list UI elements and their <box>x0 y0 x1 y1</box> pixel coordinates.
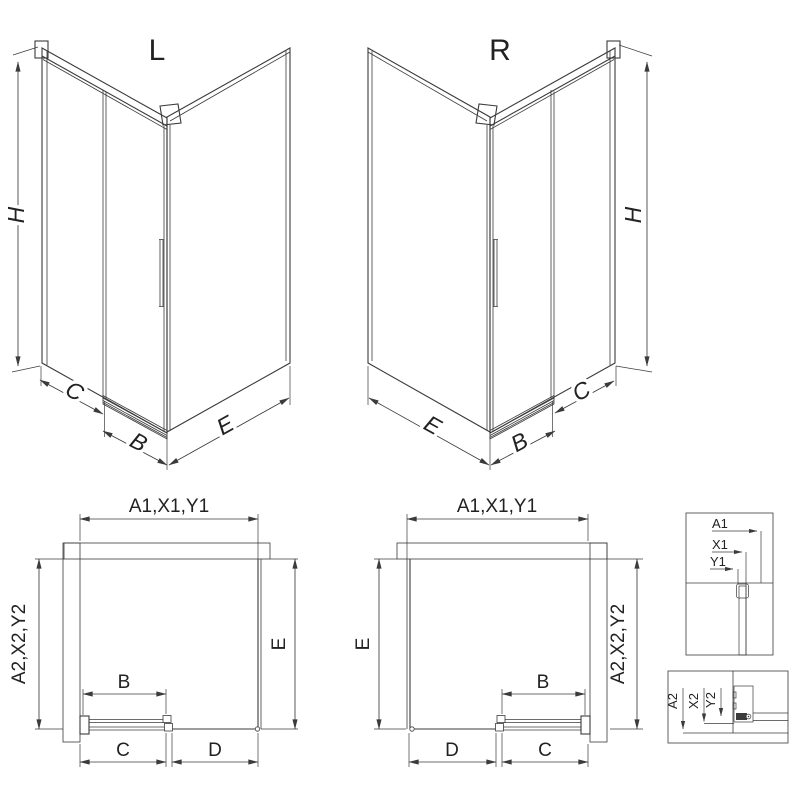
dim-label-b: B <box>118 672 131 693</box>
dim-label-b: B <box>506 427 532 457</box>
dim-label-a1: A1,X1,Y1 <box>457 496 537 517</box>
fixed-glass-left <box>407 559 410 729</box>
front-fixed-panel <box>172 727 260 731</box>
front-fixed-panel <box>410 727 496 731</box>
right-variant-dimensions: H E B C <box>368 45 652 470</box>
detail-label-x1: X1 <box>712 537 728 552</box>
dim-label-e: E <box>269 638 290 651</box>
detail-label-x2: X2 <box>686 693 701 709</box>
detail-label-a1: A1 <box>712 516 728 531</box>
dim-label-b: B <box>126 427 152 457</box>
dim-label-c: C <box>568 375 595 406</box>
left-variant-dimensions: H C B E <box>3 47 290 470</box>
plan-view-left-variant: A1,X1,Y1 A2,X2,Y2 E B C D <box>9 496 298 767</box>
dim-label-a1: A1,X1,Y1 <box>129 496 209 517</box>
right-variant-side-panel <box>476 41 620 433</box>
fixed-glass-right <box>258 559 261 729</box>
sliding-door-plan <box>80 716 173 735</box>
wall-right <box>590 543 607 742</box>
detail-frame <box>686 513 773 655</box>
left-variant-side-panel <box>35 41 181 433</box>
detail-label-a2: A2 <box>665 693 680 709</box>
detail-callout-wall-profile: A1 X1 Y1 <box>686 513 773 655</box>
dim-label-height: H <box>620 206 646 223</box>
variant-right-title: R <box>489 34 511 67</box>
wall-profile-strip <box>739 586 746 655</box>
dim-label-d: D <box>445 740 459 761</box>
wall-top <box>64 543 270 559</box>
dim-label-d: D <box>208 740 222 761</box>
iso-view-right-variant: R <box>368 34 652 470</box>
technical-drawing-sheet: L <box>0 0 800 800</box>
left-variant-door-handle <box>159 240 164 307</box>
dim-label-e: E <box>212 410 239 440</box>
wall-left <box>63 543 80 742</box>
right-variant-door-handle <box>493 240 498 307</box>
drawing-canvas: L <box>0 0 800 800</box>
iso-view-left-variant: L <box>3 34 290 470</box>
top-rail-end-cap <box>607 41 620 58</box>
plan-view-right-variant: A1,X1,Y1 A2,X2,Y2 E B D C <box>353 496 643 767</box>
detail-callout-threshold-profile: A2 X2 Y2 <box>665 671 788 743</box>
plan-right-dimensions: A1,X1,Y1 A2,X2,Y2 E B D C <box>353 496 637 767</box>
right-variant-return-panel <box>368 48 490 432</box>
sliding-door-plan <box>496 716 591 735</box>
dim-label-height: H <box>3 206 29 223</box>
dim-label-c: C <box>61 376 88 407</box>
dim-label-a2: A2,X2,Y2 <box>9 604 30 684</box>
variant-left-title: L <box>149 34 166 67</box>
dim-label-c: C <box>116 740 130 761</box>
detail-label-y1: Y1 <box>710 554 726 569</box>
dim-label-b: B <box>537 672 550 693</box>
plan-left-dimensions: A1,X1,Y1 A2,X2,Y2 E B C D <box>9 496 295 767</box>
left-variant-return-panel <box>167 48 290 432</box>
dim-label-c: C <box>538 740 552 761</box>
dim-label-e: E <box>353 638 374 651</box>
wall-top <box>397 543 607 559</box>
detail-label-y2: Y2 <box>703 692 718 708</box>
dim-label-e: E <box>420 410 447 440</box>
dim-label-a2: A2,X2,Y2 <box>608 604 629 684</box>
